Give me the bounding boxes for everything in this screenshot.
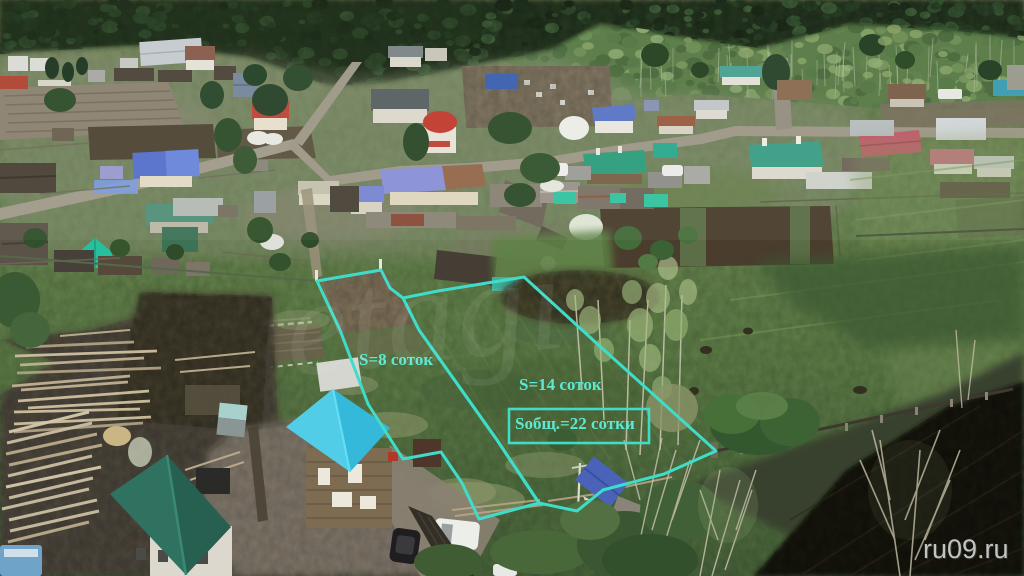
svg-text:etagi: etagi xyxy=(277,224,572,407)
svg-text:ru09.ru: ru09.ru xyxy=(923,534,1009,564)
svg-text:Sобщ.=22 сотки: Sобщ.=22 сотки xyxy=(515,414,635,433)
